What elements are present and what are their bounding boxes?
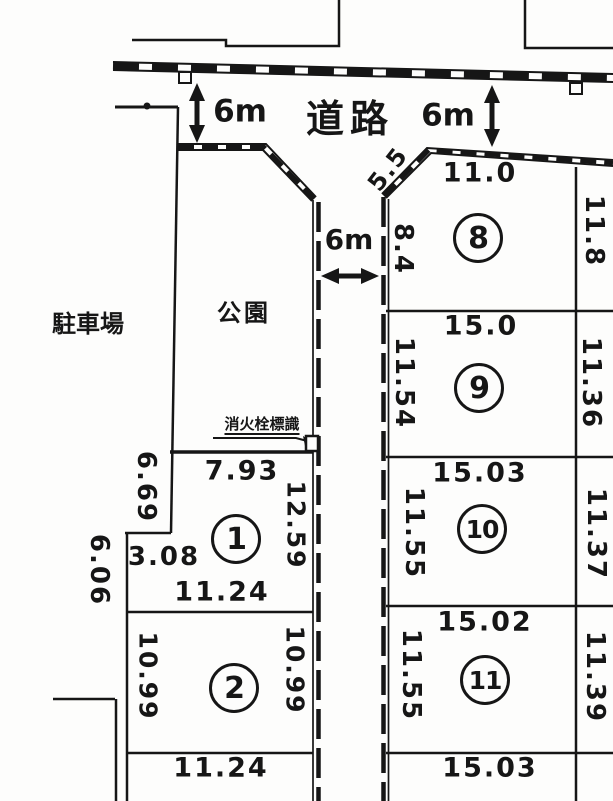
dim-plot10-right: 11.37 [583, 488, 609, 580]
dim-plot8-top: 11.0 [443, 160, 518, 187]
plot-8-number: 8 [453, 213, 503, 263]
dim-plot9-right: 11.36 [578, 337, 604, 429]
inner-road-right-edge [384, 197, 389, 801]
dim-plot2-bottom: 11.24 [173, 755, 268, 782]
width-arrow-top-left-icon [189, 83, 205, 143]
building-outline-left [132, 0, 339, 46]
fire-hydrant-arrow [213, 436, 317, 446]
width-arrow-top-right-icon [484, 85, 500, 147]
dim-plot9-left: 11.54 [391, 337, 417, 429]
plot-9-number: 9 [454, 363, 504, 413]
fire-hydrant-label: 消火栓標識 [224, 417, 299, 435]
dim-plot10-left: 11.55 [401, 487, 427, 579]
inner-road-left-edge [313, 200, 319, 801]
building-outline-right [525, 0, 613, 48]
park-top-edge [178, 144, 316, 201]
utility-box-icon [179, 72, 191, 83]
dim-plot1-right: 12.59 [284, 480, 309, 569]
plot-10-number: 10 [457, 504, 507, 554]
plot-map: 道路 駐車場 公園 6m 6m 6m 消火栓標識 5.5 11.0 11.8 8… [0, 0, 613, 801]
utility-box-icon [570, 83, 582, 94]
park-label: 公園 [217, 301, 271, 325]
fire-hydrant-marker [306, 436, 318, 451]
width-label-top-left: 6m [213, 97, 267, 128]
dim-plot2-right: 10.99 [283, 625, 308, 714]
width-label-middle: 6m [325, 226, 374, 254]
road-label: 道路 [306, 100, 394, 138]
dim-plot11-right: 11.39 [582, 631, 608, 723]
width-label-top-right: 6m [421, 101, 475, 132]
parking-label: 駐車場 [52, 312, 124, 336]
dim-plot1-step: 3.08 [128, 544, 200, 570]
dim-plot9-top: 15.0 [444, 313, 519, 340]
dim-plot8-right: 11.8 [581, 195, 607, 267]
width-arrow-middle-icon [321, 268, 379, 284]
dim-plot11-top: 15.02 [437, 609, 532, 636]
dim-plot1-left: 6.69 [133, 451, 159, 523]
dim-plot1-top: 7.93 [205, 458, 280, 485]
plot-2-number: 2 [209, 663, 259, 713]
dim-plot10-top: 15.03 [432, 460, 527, 487]
dim-plot1-bottom: 11.24 [174, 579, 269, 606]
dim-plot11-left: 11.55 [398, 629, 424, 721]
dim-plot8-left: 8.4 [390, 223, 416, 275]
dim-plot11-bottom: 15.03 [442, 755, 537, 782]
dim-parking-edge: 6.06 [86, 534, 112, 606]
dim-plot2-left: 10.99 [136, 631, 161, 720]
plot-11-number: 11 [460, 655, 510, 705]
plot-1-number: 1 [211, 514, 261, 564]
